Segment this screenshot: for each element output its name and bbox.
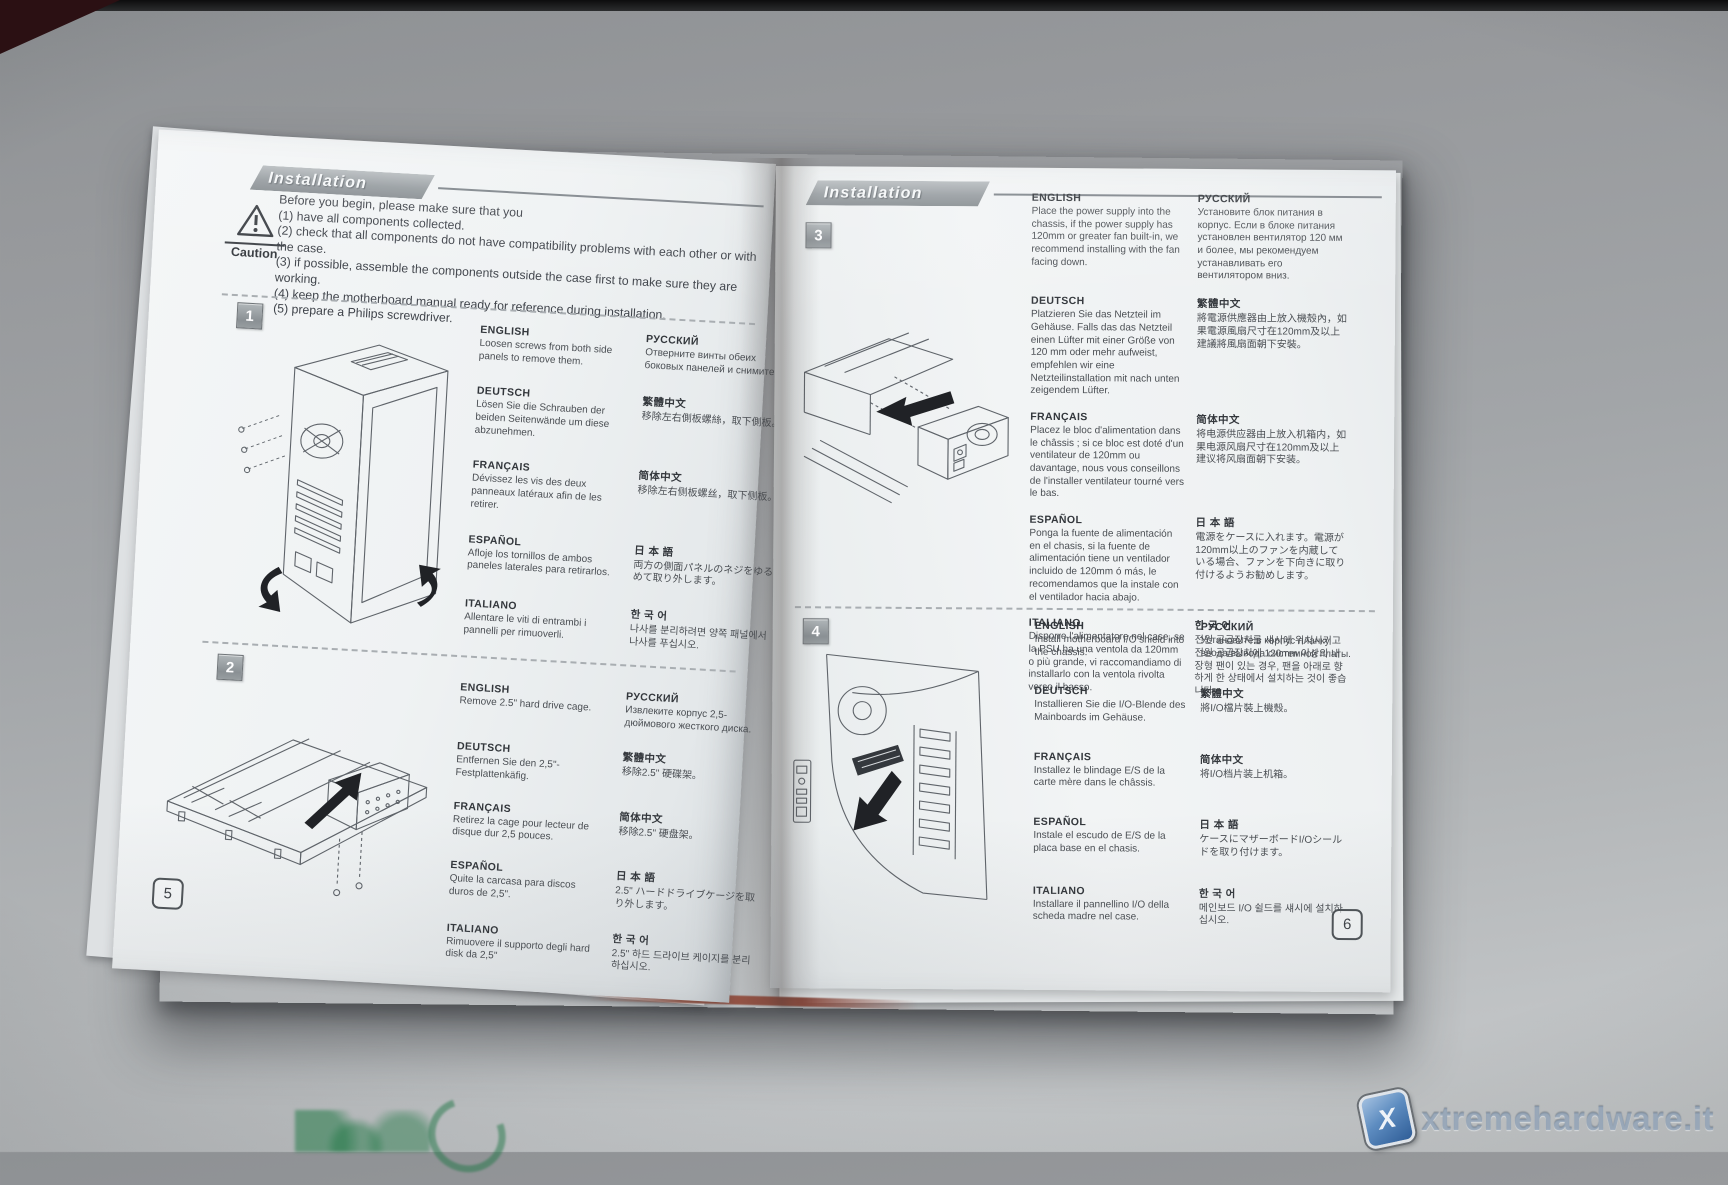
language-label: 日 本 語 [1195,515,1347,531]
language-label: DEUTSCH [1031,295,1187,308]
lang-block: DEUTSCHEntfernen Sie den 2,5"-Festplatte… [455,740,609,788]
language-label: ENGLISH [1032,192,1188,205]
language-label: 한 국 어 [1199,885,1351,901]
right-page: Installation Guide 3 ENGLISHPlace the p [770,166,1396,992]
table-edge-strip [0,0,1728,11]
lang-block: 한 국 어나사를 분리하려면 양쪽 패널에서 나사를 푸십시오. [629,606,779,657]
language-label: РУССКИЙ [1201,621,1353,634]
installation-guide-banner: Installation Guide [250,165,435,200]
lang-block: ESPAÑOLInstale el escudo de E/S de la pl… [1033,816,1189,859]
lang-block: 简体中文将I/O档片装上机箱。 [1200,752,1352,792]
instruction-text: Установите блок питания в корпус. Если в… [1197,207,1350,284]
lang-block: ITALIANOInstallare il pannellino I/O del… [1033,884,1189,927]
instruction-text: 電源をケースに入れます。電源が120mm以上のファンを内蔵している場合、ファンを… [1195,532,1347,584]
instruction-text: Installare il pannellino I/O della sched… [1033,898,1189,924]
lang-block: ESPAÑOLPonga la fuente de alimentación e… [1029,514,1186,605]
lang-block: РУССКИЙУстановите блок питания в корпус.… [1197,193,1350,284]
watermark: X xtremehardware.it [1362,1092,1714,1146]
page-number-6: 6 [1332,909,1363,940]
lang-block: 한 국 어2.5" 하드 드라이브 케이지를 분리하십시오. [611,931,761,982]
lang-block: ESPAÑOLAfloje los tornillos de ambos pan… [467,533,621,584]
instruction-text: Установите в корпус планку ввода/вывода … [1201,635,1353,661]
lang-block: DEUTSCHLösen Sie die Schrauben der beide… [474,385,629,445]
language-label: 繁體中文 [1200,686,1352,702]
lang-block: РУССКИЙОтверните винты обеих боковых пан… [644,333,794,381]
language-label: 简体中文 [1196,412,1348,428]
step4-io-shield-illustration [791,640,1033,912]
instruction-text: 将I/O档片装上机箱。 [1200,769,1352,783]
instruction-text: Instale el escudo de E/S de la placa bas… [1033,830,1189,856]
lang-block: DEUTSCHInstallieren Sie die I/O-Blende d… [1034,685,1190,725]
instruction-text: 將電源供應器由上放入機殼內，如果電源風扇尺寸在120mm及以上建議將風扇面朝下安… [1197,313,1349,352]
instruction-text: Place the power supply into the chassis,… [1031,206,1187,271]
lang-block: 繁體中文將電源供應器由上放入機殼內，如果電源風扇尺寸在120mm及以上建議將風扇… [1196,296,1349,400]
instruction-text: 将电源供应器由上放入机箱内，如果电源风扇尺寸在120mm及以上建议将风扇面朝下安… [1196,429,1348,468]
lang-block: ITALIANORimuovere il supporto degli hard… [445,921,599,972]
lang-block: 日 本 語両方の側面パネルのネジをゆるめて取り外します。 [632,542,782,593]
instruction-text: Install motherboard I/O shield into the … [1035,634,1191,660]
instruction-text: Ponga la fuente de alimentación en el ch… [1029,528,1186,605]
lang-block: FRANÇAISInstallez le blindage E/S de la … [1034,751,1190,791]
page-number-5: 5 [151,877,184,910]
language-label: 简体中文 [1200,752,1352,768]
language-label: ESPAÑOL [1033,816,1189,829]
lang-block: 日 本 語2.5" ハードドライブケージを取り外します。 [614,868,764,919]
lang-block: 繁體中文將I/O檔片裝上機殼。 [1200,686,1352,726]
instruction-text: Dévissez les vis des deux panneaux latér… [470,473,624,519]
lang-block: 日 本 語ケースにマザーボードI/Oシールドを取り付けます。 [1199,817,1351,860]
language-label: РУССКИЙ [1198,193,1350,206]
lang-block: DEUTSCHPlatzieren Sie das Netzteil im Ge… [1030,295,1187,399]
instruction-text: 將I/O檔片裝上機殼。 [1200,703,1352,717]
step3-psu-illustration [799,316,1026,553]
lang-block: 日 本 語電源をケースに入れます。電源が120mm以上のファンを内蔵している場合… [1195,515,1348,606]
language-label: ENGLISH [1035,620,1191,633]
green-print-artifact [295,1110,430,1152]
step-2-number-badge: 2 [216,654,243,681]
language-label: DEUTSCH [1034,685,1190,698]
lang-block: 繁體中文移除2.5" 硬碟架。 [621,750,771,798]
installation-guide-banner: Installation Guide [806,180,990,206]
language-label: 日 本 語 [1199,817,1351,833]
lang-block: РУССКИЙУстановите в корпус планку ввода/… [1201,621,1353,661]
instruction-text: Platzieren Sie das Netzteil im Gehäuse. … [1030,309,1187,399]
logo-letter: X [1375,1102,1399,1136]
instruction-text: Placez le bloc d'alimentation dans le ch… [1030,425,1187,502]
lang-block: ENGLISHInstall motherboard I/O shield in… [1035,620,1191,660]
lang-block: 简体中文移除2.5" 硬盘架。 [618,809,768,857]
language-label: ITALIANO [1033,884,1189,897]
lang-block: FRANÇAISPlacez le bloc d'alimentation da… [1030,411,1187,502]
step-3-number-badge: 3 [805,222,831,248]
banner-title: Installation Guide [824,184,923,226]
lang-block: РУССКИЙИзвлеките корпус 2,5-дюймового же… [624,690,774,738]
step-2-languages: ENGLISHRemove 2.5" hard drive cage. РУСС… [445,681,774,981]
lang-block: ITALIANOAllentare le viti di entrambi i … [463,597,617,648]
instruction-text: Installez le blindage E/S de la carte mè… [1034,765,1190,791]
lang-block: ESPAÑOLQuite la carcasa para discos duro… [448,859,602,910]
step-1-languages: ENGLISHLoosen screws from both side pane… [463,324,794,657]
instruction-text: 메인보드 I/O 쉴드를 섀시에 설치하십시오. [1199,902,1351,928]
step2-cage-illustration [150,679,444,949]
language-label: FRANÇAIS [1030,411,1186,424]
instruction-text: Lösen Sie die Schrauben der beiden Seite… [474,399,628,445]
language-label: ESPAÑOL [1029,514,1185,527]
lang-block: ENGLISHPlace the power supply into the c… [1031,192,1188,283]
watermark-text: xtremehardware.it [1421,1100,1714,1138]
installation-guide-booklet: Installation Guide Caution Before you be… [158,124,1398,1024]
lang-block: ENGLISHRemove 2.5" hard drive cage. [458,681,612,729]
language-label: 繁體中文 [1197,296,1349,312]
warning-triangle-icon [235,202,277,240]
green-print-swirl-artifact [416,1085,518,1185]
lang-block: FRANÇAISDévissez les vis des deux pannea… [470,459,625,519]
language-label: FRANÇAIS [1034,751,1190,764]
lang-block: 繁體中文移除左右側板螺絲，取下側板。 [640,394,791,454]
left-page: Installation Guide Caution Before you be… [112,130,776,1003]
lang-block: FRANÇAISRetirez la cage pour lecteur de … [452,800,606,848]
instruction-text: ケースにマザーボードI/Oシールドを取り付けます。 [1199,834,1351,860]
lang-block: 简体中文将电源供应器由上放入机箱内，如果电源风扇尺寸在120mm及以上建议将风扇… [1196,412,1349,503]
lang-block: 简体中文移除左右侧板螺丝，取下侧板。 [636,468,787,528]
step-4-languages: ENGLISHInstall motherboard I/O shield in… [1033,620,1353,929]
lang-block: 한 국 어메인보드 I/O 쉴드를 섀시에 설치하십시오. [1199,885,1351,928]
photo-of-installation-guide: { "colors": { "banner_gray": "#8b9194", … [0,0,1728,1152]
lang-block: ENGLISHLoosen screws from both side pane… [478,324,632,372]
step1-case-illustration [223,324,464,636]
instruction-text: Installieren Sie die I/O-Blende des Main… [1034,699,1190,725]
xtremehardware-x-logo-icon: X [1357,1087,1417,1150]
